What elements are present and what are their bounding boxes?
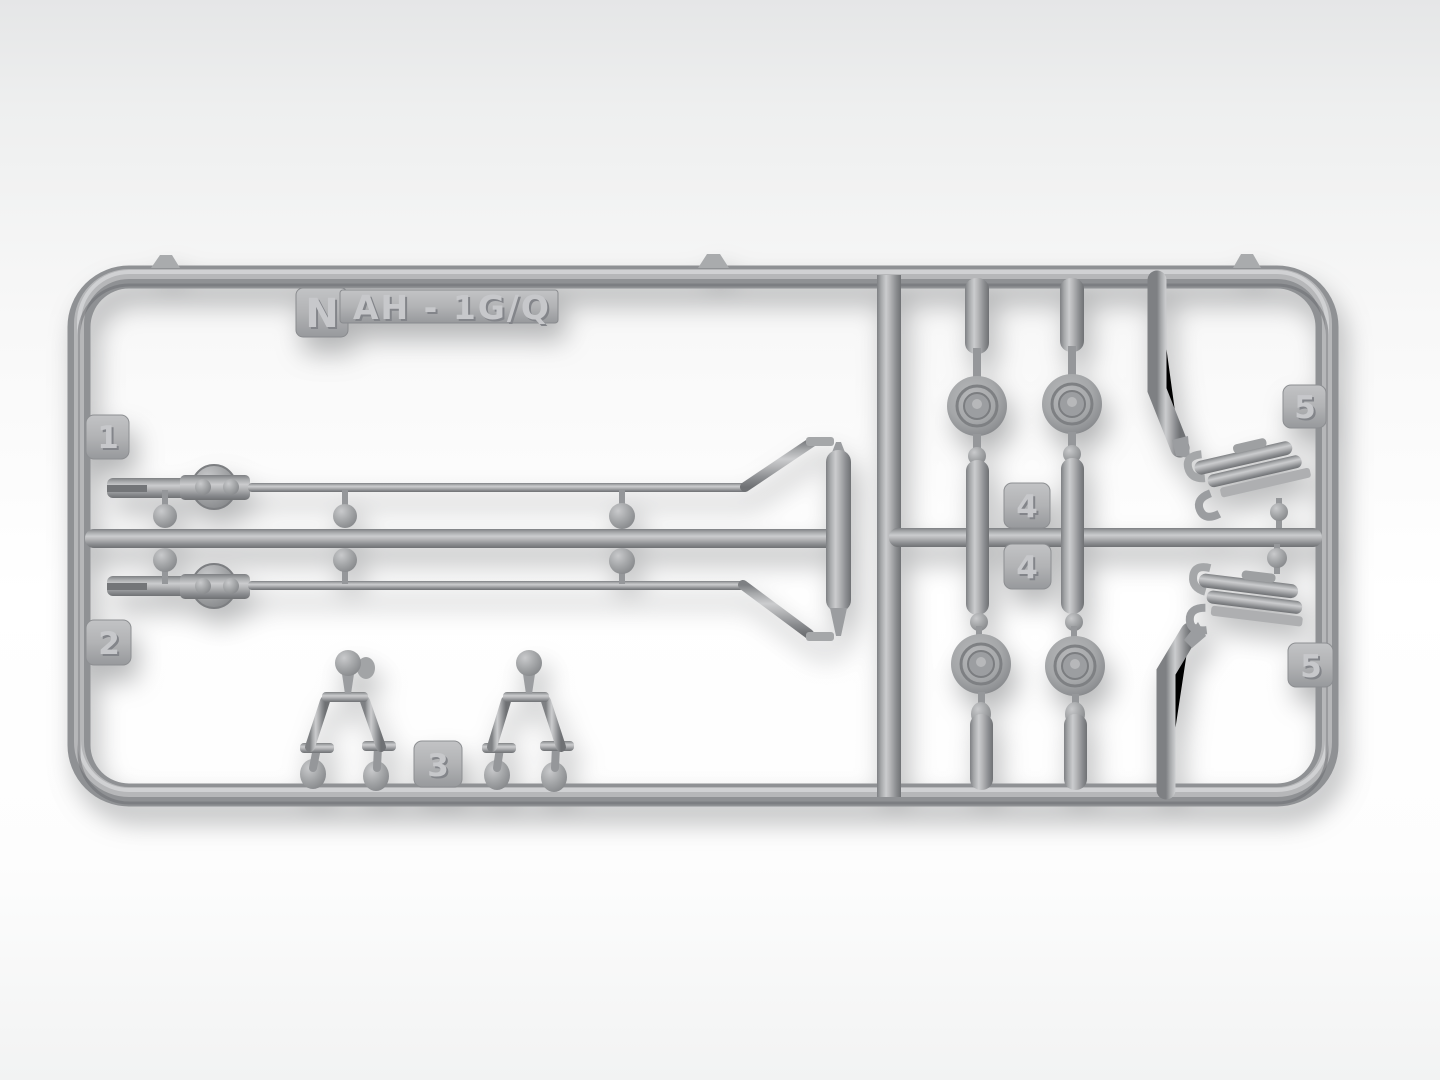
svg-text:AH - 1G/Q: AH - 1G/Q <box>353 288 551 327</box>
pilot-figure-part-right <box>482 650 574 792</box>
svg-text:2: 2 <box>98 626 120 662</box>
kit-code-label: AH - 1G/Q AH - 1G/Q <box>353 288 553 329</box>
skid-tube-part-upper <box>107 437 834 509</box>
part-tag-3: 3 3 <box>414 741 462 787</box>
skid-tube-part-lower <box>107 564 834 641</box>
part-tag-2: 2 2 <box>86 620 131 665</box>
exhaust-feeder-upper <box>1157 280 1190 458</box>
wheel <box>951 634 1011 694</box>
svg-text:3: 3 <box>427 748 449 784</box>
runner-grid <box>85 275 1322 797</box>
sprue-illustration: N N AH - 1G/Q AH - 1G/Q 1 1 2 2 3 <box>0 0 1440 1080</box>
part-tag-1: 1 1 <box>86 415 129 459</box>
wheel <box>1042 374 1102 434</box>
gate-nub <box>698 254 729 268</box>
part-tag-4b: 4 4 <box>1004 544 1051 589</box>
svg-text:4: 4 <box>1016 550 1038 586</box>
gate-nub <box>151 255 180 268</box>
kit-label-plate: N N AH - 1G/Q AH - 1G/Q <box>296 288 558 339</box>
exhaust-part-lower <box>1187 544 1308 643</box>
svg-text:4: 4 <box>1016 489 1038 525</box>
part-tag-4a: 4 4 <box>1004 483 1050 528</box>
sprue-letter: N N <box>305 291 340 339</box>
svg-text:5: 5 <box>1294 390 1316 426</box>
svg-text:N: N <box>305 291 338 337</box>
sprue-tree: N N AH - 1G/Q AH - 1G/Q 1 1 2 2 3 <box>79 254 1333 803</box>
exhaust-feeder-lower <box>1166 622 1206 790</box>
exhaust-part-upper <box>1185 429 1315 528</box>
part-tag-5b: 5 5 <box>1288 643 1333 687</box>
wheel <box>1045 636 1105 696</box>
svg-text:5: 5 <box>1300 649 1322 685</box>
gate-nub <box>1233 254 1261 268</box>
svg-text:1: 1 <box>97 420 119 456</box>
photo-of-model-kit-sprue: N N AH - 1G/Q AH - 1G/Q 1 1 2 2 3 <box>0 0 1440 1080</box>
pilot-figure-part-left <box>300 650 396 791</box>
part-tag-5a: 5 5 <box>1283 385 1326 428</box>
muffler-part <box>826 442 851 636</box>
wheel <box>947 376 1007 436</box>
